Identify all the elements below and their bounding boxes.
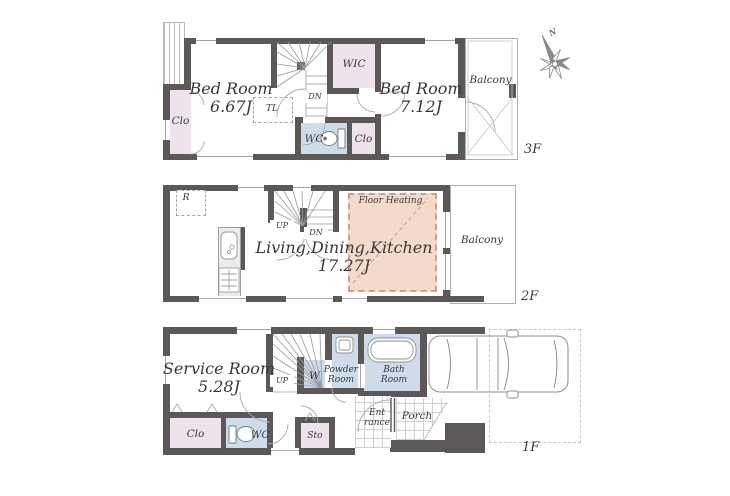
window	[199, 296, 246, 303]
window	[237, 327, 271, 334]
wall	[184, 38, 465, 44]
window	[238, 185, 264, 192]
window	[286, 296, 333, 303]
refrigerator-label: R	[178, 192, 194, 204]
floor-tag-2f: 2F	[521, 289, 538, 304]
stairs-up-label-1f: UP	[270, 375, 294, 387]
entrance-label: Ent rance	[362, 405, 392, 431]
bedroom-left-name: Bed Room	[189, 80, 272, 98]
window	[373, 327, 395, 334]
wall	[297, 357, 304, 392]
wall	[450, 296, 484, 302]
closet-left-label-3f: Clo	[168, 113, 193, 129]
wall	[333, 185, 339, 232]
sliding-door	[443, 254, 450, 290]
bedroom-right-size: 7.12J	[400, 98, 442, 116]
window	[342, 296, 367, 303]
room-label-service: Service Room 5.28J	[158, 358, 280, 398]
service-room-size: 5.28J	[198, 378, 240, 396]
ldk-size: 17.27J	[318, 257, 370, 275]
window	[196, 38, 216, 45]
stairs-up-label-2f: UP	[270, 220, 294, 232]
wall	[420, 327, 427, 397]
closet-label-1f: Clo	[170, 426, 221, 442]
closet-hall-label-3f: Clo	[352, 131, 375, 147]
bath-room-label: Bath Room	[375, 361, 413, 389]
wall	[458, 132, 465, 160]
wc-label-1f: WC	[247, 427, 273, 443]
sliding-door	[443, 212, 450, 248]
wall	[445, 423, 485, 453]
floorplan-canvas: Bed Room 6.67J Bed Room 7.12J WIC Clo WC…	[0, 0, 730, 496]
balcony-label-3f: Balcony	[465, 73, 516, 88]
wall	[297, 62, 305, 70]
ldk-name: Living,Dining,Kitchen	[255, 239, 432, 257]
window	[293, 185, 311, 192]
window	[271, 448, 299, 455]
wall	[329, 417, 335, 455]
kitchen-counter	[218, 227, 241, 297]
wall	[325, 327, 332, 360]
bedroom-right-name: Bed Room	[379, 80, 462, 98]
window	[425, 38, 455, 45]
site-boundary-dashed	[489, 329, 581, 443]
wall	[390, 440, 445, 452]
floor-heating-label: Floor Heating	[348, 195, 433, 208]
floor-tag-1f: 1F	[522, 440, 539, 455]
wic-label: WIC	[333, 56, 375, 72]
storage-label: Sto	[301, 429, 329, 443]
room-label-ldk: Living,Dining,Kitchen 17.27J	[244, 236, 444, 278]
balcony-3f	[465, 38, 518, 160]
wall	[268, 185, 274, 223]
wall	[163, 448, 355, 455]
floor-tag-3f: 3F	[524, 142, 541, 157]
wc-label-3f: WC	[301, 131, 327, 147]
wall	[327, 88, 359, 94]
compass-north-label: N	[545, 26, 562, 41]
powder-room-label: Powder Room	[319, 361, 363, 389]
window	[197, 154, 253, 161]
bedroom-left-size: 6.67J	[210, 98, 252, 116]
window	[389, 154, 446, 161]
stairs-down-label-3f: DN	[303, 91, 327, 103]
porch-label: Porch	[395, 409, 439, 424]
tl-label: TL	[253, 97, 291, 121]
room-label-bedroom-right: Bed Room 7.12J	[379, 76, 463, 120]
balcony-label-2f: Balcony	[450, 233, 514, 248]
wall	[163, 327, 485, 334]
wall	[163, 185, 170, 302]
service-room-name: Service Room	[163, 360, 275, 378]
